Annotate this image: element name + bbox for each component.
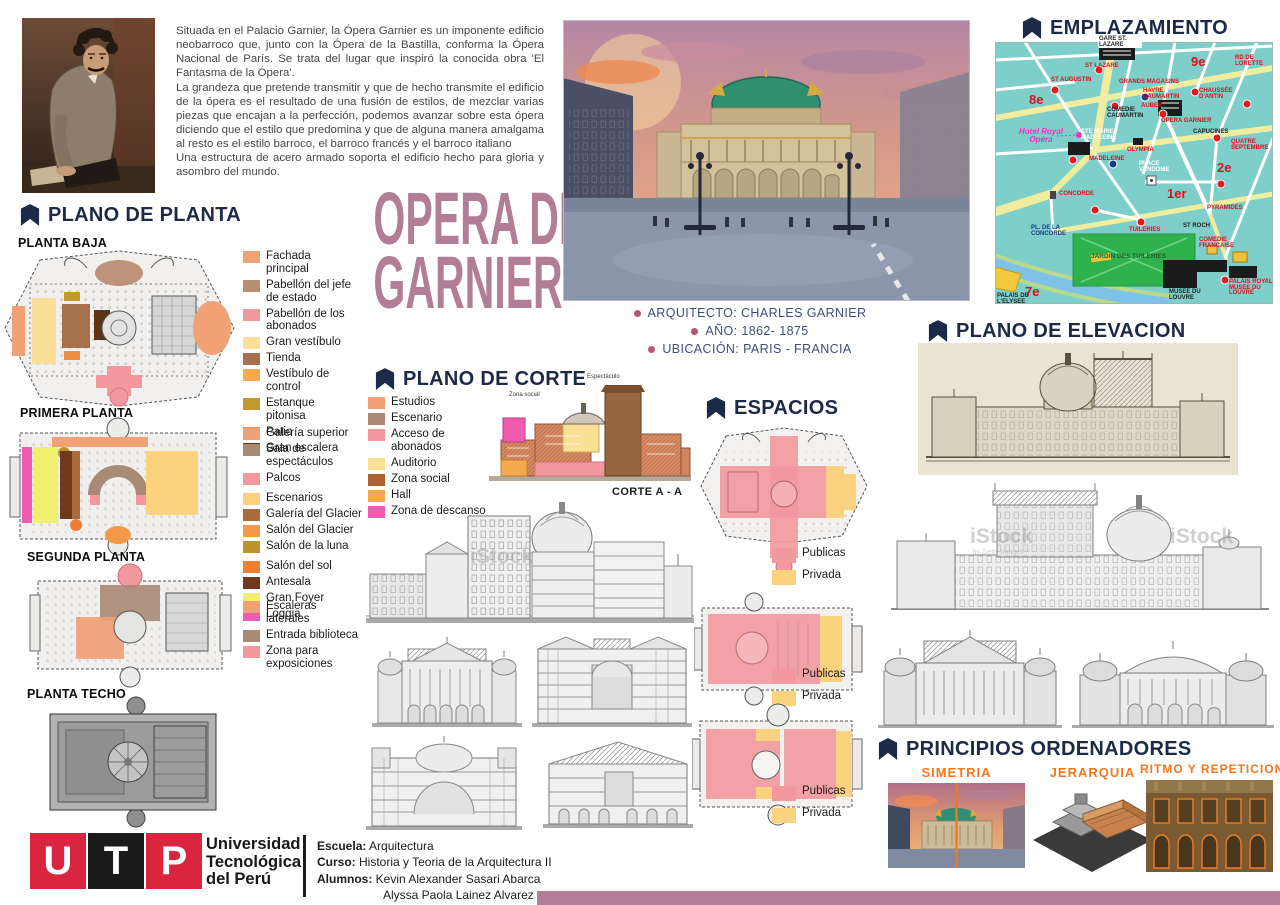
legend-swatch — [772, 808, 796, 823]
legend-label: Privada — [802, 690, 841, 703]
legend-swatch — [368, 474, 385, 486]
planta-baja-plan — [2, 248, 237, 408]
corte-label-espectaculo: Espectáculo — [587, 374, 620, 380]
map-label-arrondissement: 8e — [1029, 94, 1043, 106]
legend-item: Escaleras laterales — [243, 600, 361, 626]
map-label: GRANDS MAGASINS — [1119, 80, 1179, 86]
students-line: Alumnos: Kevin Alexander Sasari Abarca — [317, 871, 552, 887]
longitudinal-section-engraving — [362, 496, 698, 630]
primera-planta-plan — [6, 417, 231, 557]
intro-paragraph: La grandeza que pretende transmitir y qu… — [176, 81, 544, 152]
legend-item: Publicas — [772, 547, 845, 563]
legend-label: Privada — [802, 569, 841, 582]
legend-label: Zona para exposiciones — [266, 645, 361, 671]
legend-item: Vestíbulo de control — [243, 368, 355, 394]
map-label: TUILERIES — [1129, 228, 1160, 234]
legend-label: Estudios — [391, 396, 435, 409]
legend-item: Entrada biblioteca — [243, 629, 361, 642]
legend-item: Pabellón de los abonados — [243, 308, 355, 334]
bookmark-icon — [375, 367, 395, 391]
legend-item: Salón de la luna — [243, 540, 365, 553]
legend-swatch — [368, 397, 385, 409]
bookmark-icon — [1022, 16, 1042, 40]
opera-garnier-photo — [563, 20, 970, 301]
bullet-dot-icon — [634, 310, 641, 317]
primera-planta-legend: Galería superior Sala de espectáculos Pa… — [243, 427, 365, 624]
map-label: PLACE VENDOME — [1139, 162, 1175, 173]
map-label: PYRAMIDES — [1207, 206, 1243, 212]
intro-paragraph: Situada en el Palacio Garnier, la Ópera … — [176, 24, 544, 81]
bookmark-icon — [928, 319, 948, 343]
jerarquia-image — [1025, 778, 1160, 878]
section-principios-ordenadores: PRINCIPIOS ORDENADORES — [878, 737, 1192, 761]
bookmark-icon — [878, 737, 898, 761]
legend-item: Palcos — [243, 472, 365, 485]
map-label: JARDIN DES TUILERIES — [1091, 254, 1166, 260]
elevation-front-right — [1066, 637, 1280, 731]
legend-item: Salón del Glacier — [243, 524, 365, 537]
map-label: RD DE LORETTE — [1235, 56, 1271, 67]
bottom-accent-bar — [537, 891, 1280, 905]
legend-swatch — [243, 509, 260, 521]
legend-swatch — [243, 398, 260, 410]
map-label-arrondissement: 9e — [1191, 56, 1205, 68]
fact-text: UBICACIÓN: PARIS - FRANCIA — [662, 342, 851, 356]
legend-swatch — [243, 561, 260, 573]
utp-logo-letter-t: T — [88, 833, 144, 889]
bullet-dot-icon — [691, 328, 698, 335]
legend-item: Estanque pitonisa — [243, 397, 355, 423]
poster-title-line2: GARNIER — [373, 247, 524, 321]
poster: Situada en el Palacio Garnier, la Ópera … — [0, 0, 1280, 905]
legend-label: Pabellón del jefe de estado — [266, 279, 355, 305]
intro-text: Situada en el Palacio Garnier, la Ópera … — [176, 24, 544, 180]
legend-label: Antesala — [266, 576, 311, 589]
map-label: CHAUSSÉE D'ANTIN — [1199, 89, 1245, 100]
legend-swatch — [243, 428, 260, 440]
map-label: MUSEE DU LOUVRE — [1169, 290, 1209, 301]
legend-item: Privada — [772, 807, 845, 823]
map-label: ST ROCH — [1183, 224, 1210, 230]
legend-swatch — [243, 601, 260, 613]
map-label: QUATRE SEPTEMBRE — [1231, 140, 1271, 151]
legend-item: Antesala — [243, 576, 365, 589]
map-label: HAVRE CAUMARTIN — [1143, 89, 1185, 100]
legend-label: Salón del Glacier — [266, 524, 354, 537]
legend-swatch — [243, 541, 260, 553]
legend-item: Auditorio — [368, 457, 486, 470]
map-label: MADELEINE — [1089, 157, 1124, 163]
paris-map: GARE ST. LAZARE ST LAZARE ST AUGUSTIN RD… — [995, 42, 1273, 304]
utp-logo-letter-u: U — [30, 833, 86, 889]
section-title: ESPACIOS — [734, 397, 838, 420]
bookmark-icon — [20, 203, 40, 227]
legend-item: Acceso de abonados — [368, 428, 486, 454]
legend-swatch — [243, 493, 260, 505]
legend-swatch — [243, 630, 260, 642]
map-label: Hotel Royal Opéra — [1009, 128, 1073, 143]
map-label: CONCORDE — [1059, 192, 1094, 198]
espacios-legend-3: Publicas Privada — [772, 785, 845, 829]
section-plano-de-planta: PLANO DE PLANTA — [20, 203, 241, 227]
legend-item: Tienda — [243, 352, 355, 365]
legend-item: Fachada principal — [243, 250, 355, 276]
legend-label: Escenarios — [266, 492, 323, 505]
course-line: Curso: Historia y Teoria de la Arquitect… — [317, 854, 552, 870]
fact-year: AÑO: 1862- 1875 — [590, 324, 910, 338]
legend-label: Auditorio — [391, 457, 436, 470]
bookmark-icon — [706, 396, 726, 420]
map-label: STE MARIE MADELEINE — [1081, 130, 1115, 141]
map-label: GARE ST. LAZARE — [1098, 37, 1142, 48]
segunda-planta-legend: Escaleras laterales Entrada biblioteca Z… — [243, 600, 361, 674]
legend-item: Estudios — [368, 396, 486, 409]
front-facade-engraving — [368, 631, 526, 729]
legend-swatch — [243, 280, 260, 292]
fact-text: ARQUITECTO: CHARLES GARNIER — [648, 306, 867, 320]
ritmo-repeticion-image — [1146, 780, 1273, 872]
corte-label-zona-social: Zona social — [509, 392, 540, 398]
segunda-planta-plan — [28, 561, 233, 691]
legend-swatch — [243, 473, 260, 485]
espacios-legend-1: Publicas Privada — [772, 547, 845, 591]
legend-label: Estanque pitonisa — [266, 397, 355, 423]
legend-item: Escenarios — [243, 492, 365, 505]
legend-swatch — [772, 786, 796, 801]
legend-label: Palcos — [266, 472, 301, 485]
legend-swatch — [243, 646, 260, 658]
legend-label: Salón de la luna — [266, 540, 348, 553]
university-name-line: del Perú — [206, 871, 301, 889]
legend-label: Fachada principal — [266, 250, 355, 276]
map-label: PALAIS ROYAL MUSEE DU LOUVRE — [1229, 280, 1273, 297]
legend-swatch — [772, 570, 796, 585]
utp-logo-letter-p: P — [146, 833, 202, 889]
planta-techo-plan — [36, 696, 231, 828]
legend-item: Pabellón del jefe de estado — [243, 279, 355, 305]
footer-divider — [303, 835, 306, 897]
principio-label-ritmo: RITMO Y REPETICION — [1140, 762, 1278, 776]
fact-location: UBICACIÓN: PARIS - FRANCIA — [590, 342, 910, 356]
legend-item: Zona para exposiciones — [243, 645, 361, 671]
legend-label: Acceso de abonados — [391, 428, 486, 454]
legend-label: Gran vestíbulo — [266, 336, 341, 349]
fact-text: AÑO: 1862- 1875 — [705, 324, 808, 338]
legend-label: Vestíbulo de control — [266, 368, 355, 394]
cross-section-engraving-1 — [526, 629, 698, 729]
legend-swatch — [772, 669, 796, 684]
legend-item: Galería del Glacier — [243, 508, 365, 521]
legend-item: Gran vestíbulo — [243, 336, 355, 349]
legend-swatch — [243, 337, 260, 349]
legend-label: Publicas — [802, 785, 845, 798]
map-label: ST AUGUSTIN — [1051, 78, 1091, 84]
charles-garnier-portrait — [22, 18, 155, 193]
section-plano-de-elevacion: PLANO DE ELEVACION — [928, 319, 1186, 343]
legend-label: Privada — [802, 807, 841, 820]
legend-swatch — [368, 458, 385, 470]
university-name-line: Universidad — [206, 836, 301, 854]
bullet-dot-icon — [648, 346, 655, 353]
map-label-arrondissement: 2e — [1217, 162, 1231, 174]
facts-list: ARQUITECTO: CHARLES GARNIER AÑO: 1862- 1… — [590, 306, 910, 360]
legend-swatch — [243, 353, 260, 365]
legend-label: Publicas — [802, 668, 845, 681]
elevation-front-left — [872, 627, 1068, 731]
cross-section-engraving-2 — [362, 732, 526, 832]
school-line: Escuela: Arquitectura — [317, 838, 552, 854]
map-label-arrondissement: 1er — [1167, 188, 1187, 200]
legend-label: Salón del sol — [266, 560, 332, 573]
map-label: ST LAZARE — [1085, 64, 1119, 70]
course-info: Escuela: Arquitectura Curso: Historia y … — [317, 838, 552, 903]
legend-label: Publicas — [802, 547, 845, 560]
legend-item: Zona social — [368, 473, 486, 486]
legend-swatch — [772, 548, 796, 563]
principio-label-simetria: SIMETRIA — [888, 765, 1025, 780]
legend-swatch — [368, 429, 385, 441]
legend-label: Escenario — [391, 412, 442, 425]
student-line-2: Alyssa Paola Lainez Alvarez — [317, 887, 552, 903]
map-label: COMEDIE FRANCAISE — [1199, 238, 1239, 249]
legend-item: Publicas — [772, 668, 845, 684]
map-label: CAPUCINES — [1193, 130, 1228, 136]
intro-paragraph: Una estructura de acero armado soporta e… — [176, 151, 544, 179]
legend-item: Escenario — [368, 412, 486, 425]
legend-swatch — [243, 525, 260, 537]
section-title: PLANO DE ELEVACION — [956, 320, 1186, 343]
elevation-drawing-sepia — [918, 343, 1238, 475]
legend-label: Sala de espectáculos — [266, 443, 365, 469]
legend-item: Salón del sol — [243, 560, 365, 573]
cross-section-engraving-3 — [539, 736, 697, 830]
legend-swatch — [368, 413, 385, 425]
legend-label: Zona social — [391, 473, 450, 486]
legend-swatch — [243, 577, 260, 589]
legend-swatch — [243, 251, 260, 263]
map-labels: GARE ST. LAZARE ST LAZARE ST AUGUSTIN RD… — [995, 42, 1273, 304]
fact-architect: ARQUITECTO: CHARLES GARNIER — [590, 306, 910, 320]
legend-label: Escaleras laterales — [266, 600, 361, 626]
map-label: PALAIS DE L'ELYSEE — [997, 294, 1031, 305]
map-label: PL. DE LA CONCORDE — [1031, 226, 1077, 237]
corte-aa-image: Espectáculo Zona social — [487, 378, 693, 488]
section-espacios: ESPACIOS — [706, 396, 838, 420]
legend-item: Publicas — [772, 785, 845, 801]
legend-item: Privada — [772, 569, 845, 585]
legend-label: Entrada biblioteca — [266, 629, 358, 642]
university-name: Universidad Tecnológica del Perú — [206, 836, 301, 889]
legend-label: Pabellón de los abonados — [266, 308, 355, 334]
section-title: PLANO DE PLANTA — [48, 204, 241, 227]
legend-item: Galería superior — [243, 427, 365, 440]
university-name-line: Tecnológica — [206, 854, 301, 872]
legend-swatch — [243, 309, 260, 321]
legend-label: Tienda — [266, 352, 301, 365]
legend-label: Galería del Glacier — [266, 508, 362, 521]
map-label: COMEDIE CAUMARTIN — [1107, 108, 1147, 119]
legend-label: Galería superior — [266, 427, 348, 440]
section-title: PRINCIPIOS ORDENADORES — [906, 738, 1192, 761]
map-label: OLYMPIA — [1127, 148, 1154, 154]
legend-swatch — [243, 369, 260, 381]
legend-item: Sala de espectáculos — [243, 443, 365, 469]
elevation-drawing-side — [877, 477, 1280, 625]
map-label: OPERA GARNIER — [1161, 119, 1211, 125]
legend-swatch — [243, 444, 260, 456]
simetria-image — [888, 783, 1025, 868]
